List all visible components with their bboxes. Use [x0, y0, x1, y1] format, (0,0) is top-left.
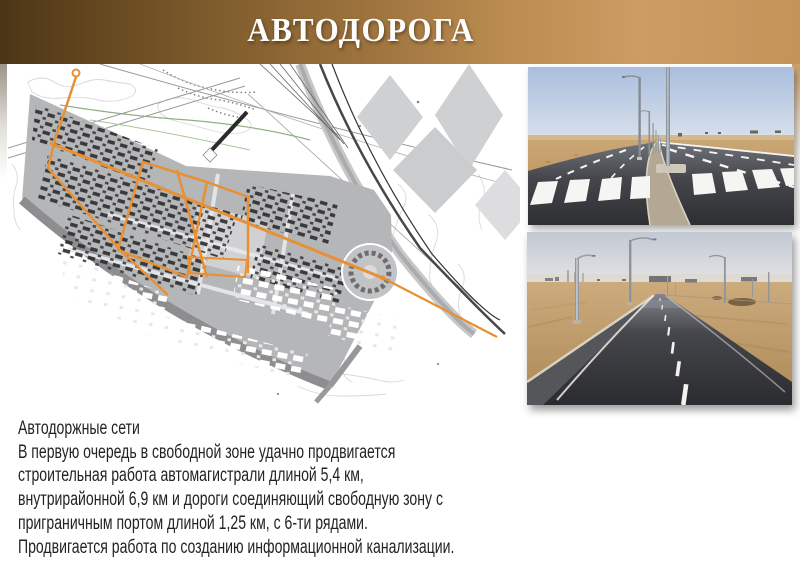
text-line: Продвигается работа по созданию информац…	[18, 536, 492, 560]
left-edge-shadow	[0, 64, 7, 179]
master-plan-svg	[8, 64, 520, 404]
slide-root: АВТОДОРОГА	[0, 0, 800, 570]
road-photo-top	[528, 67, 794, 225]
text-line: Автодоржные сети	[18, 417, 492, 441]
road-photo-bottom-svg	[527, 232, 792, 405]
text-line: В первую очередь в свободной зоне удачно…	[18, 441, 492, 465]
text-line: внутрирайонной 6,9 км и дороги соединяющ…	[18, 488, 492, 512]
master-plan-map	[8, 64, 520, 404]
body-text: Автодоржные сети В первую очередь в своб…	[18, 417, 492, 559]
text-line: приграничным портом длиной 1,25 км, с 6-…	[18, 512, 492, 536]
road-photo-bottom	[527, 232, 792, 405]
slide-title-bar: АВТОДОРОГА	[0, 0, 800, 64]
text-line: строительная работа автомагистрали длино…	[18, 464, 492, 488]
road-photo-top-svg	[528, 67, 794, 225]
slide-title: АВТОДОРОГА	[247, 11, 475, 50]
